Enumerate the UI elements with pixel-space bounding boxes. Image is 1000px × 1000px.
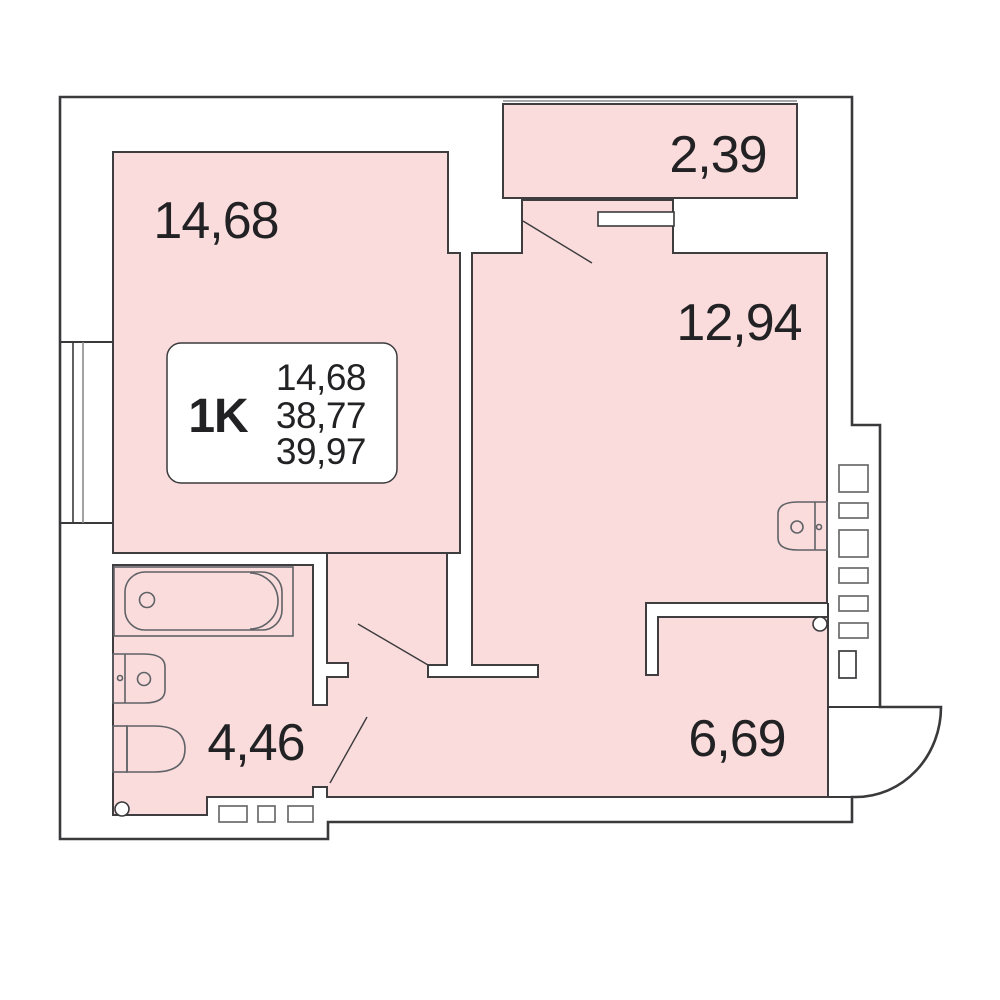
balcony-window-bar [598,212,674,226]
vent-shaft-icon [219,806,247,822]
vent-shaft-icon [839,503,868,518]
vent-shaft-icon [258,806,275,822]
room-label-bathroom: 4,46 [207,714,304,772]
room-label-kitchen: 6,69 [688,710,785,768]
vent-shaft-icon [839,465,868,492]
vent-shaft-icon [839,568,868,583]
vent-shaft-icon [288,806,313,822]
unit-total-area: 39,97 [276,431,366,472]
unit-living-area: 14,68 [276,357,366,398]
room-label-kitchen-living: 12,94 [676,294,801,352]
vent-shaft-icon [839,530,868,557]
room-label-living: 14,68 [153,192,278,250]
vent-shaft-icon [839,623,868,638]
pipe-riser-icon [115,802,129,816]
floor-plan: 1K 14,68 38,77 39,97 14,68 2,39 12,94 4,… [0,0,1000,1000]
unit-info-card: 1K 14,68 38,77 39,97 [167,343,397,483]
vent-shaft-icon [839,651,856,678]
vent-shaft-icon [839,596,868,611]
pipe-riser-icon [813,617,827,631]
room-label-balcony: 2,39 [669,126,766,184]
floor-plan-svg: 1K 14,68 38,77 39,97 14,68 2,39 12,94 4,… [0,0,1000,1000]
unit-floor-area: 38,77 [276,395,366,436]
unit-type-label: 1K [188,390,249,443]
